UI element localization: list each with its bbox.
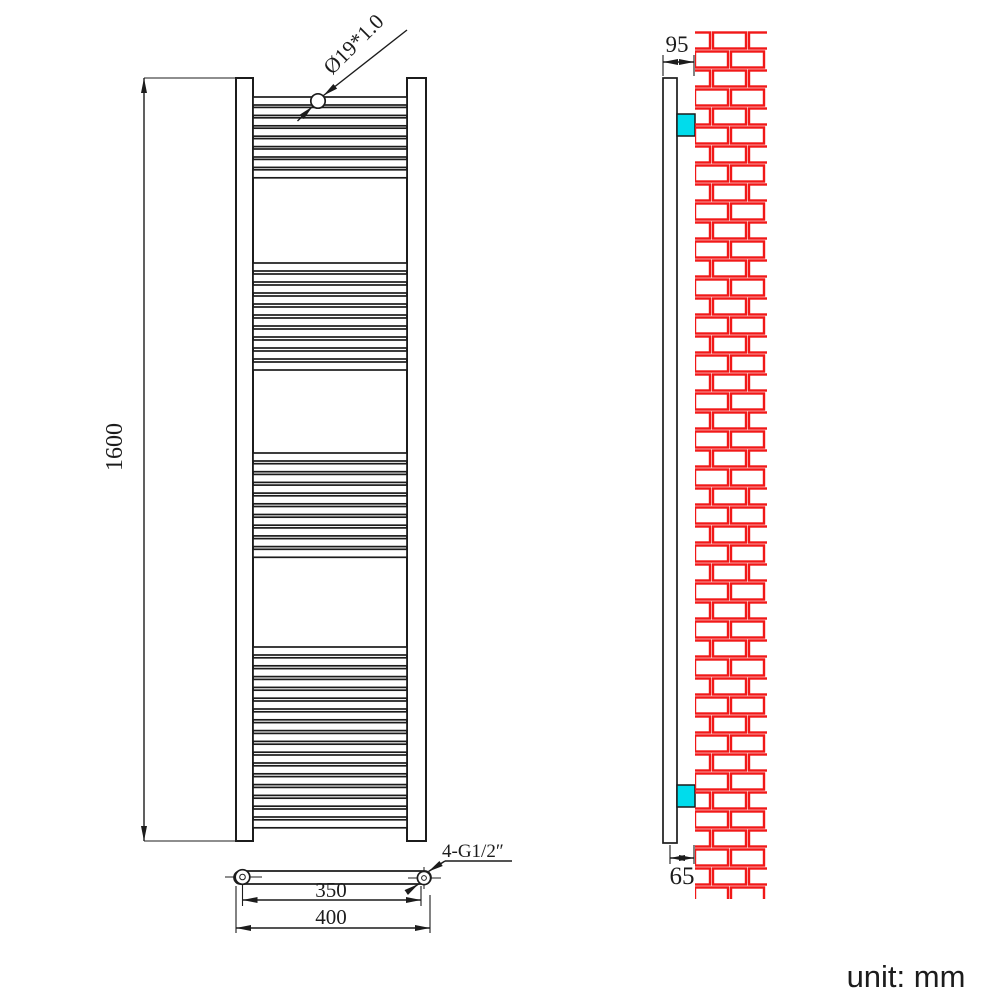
callout-leader: [429, 861, 446, 872]
brick: [713, 147, 746, 163]
brick: [695, 584, 728, 600]
brick: [713, 223, 746, 239]
brick: [695, 508, 728, 524]
brick: [713, 641, 746, 657]
brick: [713, 261, 746, 277]
brick: [749, 451, 782, 467]
brick: [731, 622, 764, 638]
brick: [731, 318, 764, 334]
brick: [731, 850, 764, 866]
brick: [695, 888, 728, 904]
brick: [749, 717, 782, 733]
brick: [695, 850, 728, 866]
brick: [713, 717, 746, 733]
brick: [731, 166, 764, 182]
radiator-profile: [663, 78, 677, 843]
brick: [677, 223, 710, 239]
brick: [677, 527, 710, 543]
brick: [695, 166, 728, 182]
right-connection-circle: [417, 871, 430, 884]
tube: [253, 820, 407, 828]
brick: [713, 299, 746, 315]
brick: [731, 812, 764, 828]
brick: [731, 888, 764, 904]
front-view: 1600 Ø19*1.0 35: [102, 9, 512, 933]
brick: [695, 660, 728, 676]
brick: [749, 413, 782, 429]
tube: [253, 690, 407, 698]
tube: [253, 128, 407, 136]
tube: [253, 285, 407, 293]
tube: [253, 658, 407, 666]
tube-spec-label: Ø19*1.0: [319, 9, 389, 79]
tube: [253, 528, 407, 536]
brick: [731, 432, 764, 448]
tube: [253, 329, 407, 337]
brick: [731, 774, 764, 790]
brick: [731, 660, 764, 676]
brick: [677, 641, 710, 657]
tube: [253, 755, 407, 763]
tube: [253, 118, 407, 126]
brick: [731, 356, 764, 372]
brick: [749, 641, 782, 657]
brick: [713, 565, 746, 581]
tube: [253, 539, 407, 547]
tube: [253, 669, 407, 677]
brick: [713, 71, 746, 87]
brick: [749, 565, 782, 581]
brick: [731, 90, 764, 106]
brick: [731, 52, 764, 68]
radiator-technical-drawing: 1600 Ø19*1.0 35: [0, 0, 1001, 1001]
tube: [253, 159, 407, 167]
tube: [253, 97, 407, 105]
brick: [713, 33, 746, 49]
right-rail: [407, 78, 426, 841]
brick: [695, 204, 728, 220]
brick: [695, 90, 728, 106]
side-view: 95 65: [663, 32, 782, 904]
tube-cross-section-circle: [311, 94, 325, 108]
tube: [253, 139, 407, 147]
brick: [731, 508, 764, 524]
brick: [695, 128, 728, 144]
tube: [253, 464, 407, 472]
brick: [731, 470, 764, 486]
tube: [253, 733, 407, 741]
brick: [749, 299, 782, 315]
tube: [253, 712, 407, 720]
unit-label: unit: mm: [847, 959, 966, 994]
brick: [677, 603, 710, 619]
brick: [695, 394, 728, 410]
left-connection-circle: [235, 870, 250, 885]
brick: [713, 603, 746, 619]
tube: [253, 453, 407, 461]
width-dimension-label: 400: [315, 905, 347, 929]
tube: [253, 744, 407, 752]
tube: [253, 777, 407, 785]
brick: [749, 869, 782, 885]
wall-offset-dimension: 65: [670, 845, 695, 890]
wall-offset-dimension-label: 65: [670, 863, 695, 890]
brick: [713, 755, 746, 771]
brick: [677, 337, 710, 353]
tube: [253, 318, 407, 326]
brick: [713, 375, 746, 391]
brick: [749, 71, 782, 87]
brick: [695, 622, 728, 638]
tube-rows: [253, 97, 407, 828]
pitch-dimension-label: 350: [315, 878, 347, 902]
brick: [749, 185, 782, 201]
brick: [677, 489, 710, 505]
tube: [253, 107, 407, 115]
callout-counter-arrow: [407, 884, 419, 892]
brick: [731, 394, 764, 410]
brick: [695, 242, 728, 258]
brick: [749, 261, 782, 277]
brick: [695, 736, 728, 752]
brick: [677, 147, 710, 163]
tube: [253, 307, 407, 315]
brick: [677, 375, 710, 391]
height-dimension: 1600: [102, 78, 253, 841]
brick: [731, 584, 764, 600]
tube: [253, 798, 407, 806]
brick: [749, 679, 782, 695]
connection-label: 4-G1/2″: [442, 841, 504, 862]
brick: [713, 185, 746, 201]
tube: [253, 149, 407, 157]
brick: [731, 698, 764, 714]
tube: [253, 362, 407, 370]
wall-bracket-top: [677, 114, 695, 136]
brick: [695, 432, 728, 448]
brick: [713, 413, 746, 429]
brick: [677, 755, 710, 771]
brick: [713, 109, 746, 125]
height-dimension-label: 1600: [102, 423, 128, 471]
depth-dimension-label: 95: [666, 32, 689, 57]
left-rail: [236, 78, 253, 841]
brick: [749, 33, 782, 49]
depth-dimension: 95: [663, 32, 694, 76]
brick: [713, 679, 746, 695]
brick: [695, 356, 728, 372]
brick: [749, 603, 782, 619]
brick: [731, 546, 764, 562]
brick: [731, 242, 764, 258]
brick: [695, 470, 728, 486]
brick: [713, 793, 746, 809]
brick: [731, 204, 764, 220]
tube: [253, 701, 407, 709]
brick: [677, 413, 710, 429]
brick: [695, 698, 728, 714]
brick: [749, 223, 782, 239]
tube: [253, 340, 407, 348]
brick: [731, 128, 764, 144]
brick: [713, 527, 746, 543]
brick: [749, 109, 782, 125]
brick: [731, 280, 764, 296]
tube: [253, 647, 407, 655]
tube: [253, 679, 407, 687]
brick: [677, 185, 710, 201]
tube: [253, 549, 407, 557]
brick: [749, 755, 782, 771]
wall-bracket-bottom: [677, 785, 695, 807]
brick: [749, 337, 782, 353]
tube: [253, 766, 407, 774]
tube: [253, 507, 407, 515]
tube: [253, 787, 407, 795]
brick: [677, 831, 710, 847]
brick: [677, 451, 710, 467]
brick: [713, 831, 746, 847]
brick: [677, 565, 710, 581]
brick: [695, 546, 728, 562]
tube: [253, 517, 407, 525]
brick: [695, 812, 728, 828]
brick: [695, 52, 728, 68]
brick: [713, 451, 746, 467]
brick: [749, 375, 782, 391]
brick: [677, 299, 710, 315]
brick: [677, 717, 710, 733]
tube: [253, 474, 407, 482]
tube: [253, 496, 407, 504]
brick: [695, 774, 728, 790]
brick: [713, 869, 746, 885]
brick: [677, 679, 710, 695]
tube: [253, 263, 407, 271]
brick-wall: [677, 33, 782, 904]
tube: [253, 351, 407, 359]
brick: [749, 527, 782, 543]
tube: [253, 274, 407, 282]
brick: [677, 261, 710, 277]
brick: [749, 793, 782, 809]
brick: [749, 489, 782, 505]
brick: [731, 736, 764, 752]
brick: [749, 147, 782, 163]
tube: [253, 809, 407, 817]
brick: [713, 489, 746, 505]
brick: [713, 337, 746, 353]
brick: [749, 831, 782, 847]
tube: [253, 170, 407, 178]
tube: [253, 485, 407, 493]
tube: [253, 296, 407, 304]
brick: [695, 318, 728, 334]
brick: [695, 280, 728, 296]
tube: [253, 723, 407, 731]
